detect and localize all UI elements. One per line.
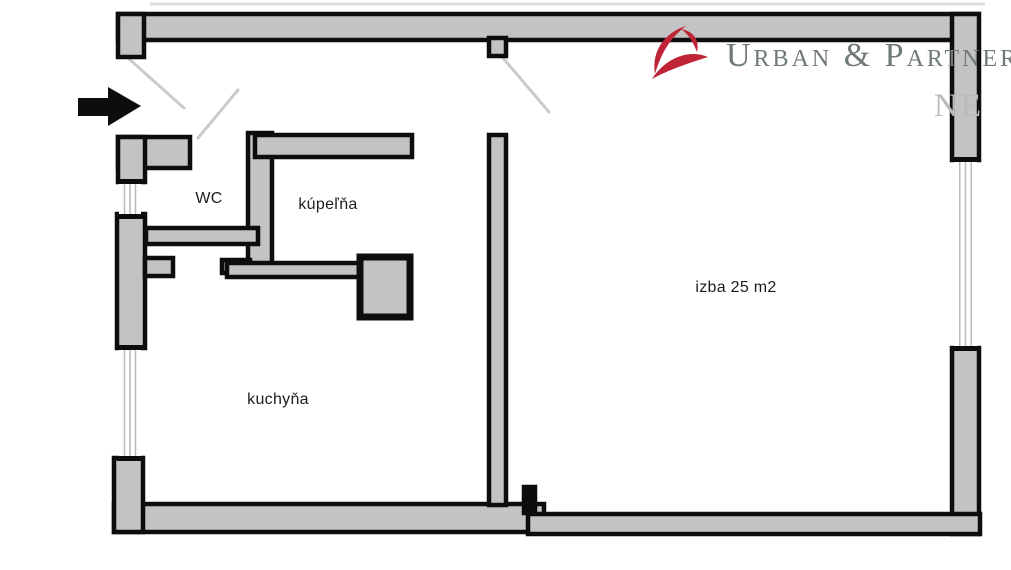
- watermark-text: NE: [934, 88, 984, 125]
- window-left-lower-cap-bottom: [117, 456, 143, 461]
- wall-left-top-wall-v: [118, 137, 145, 182]
- wall-central-wall: [489, 135, 506, 505]
- entry-arrow-icon: [78, 87, 141, 126]
- wall-bottom-wall-izba: [528, 514, 980, 534]
- izba-door-swing: [503, 58, 549, 112]
- room-label-izba: izba 25 m2: [695, 279, 776, 297]
- room-label-wc: WC: [195, 190, 222, 208]
- brand-logo-swoosh-icon: [646, 24, 710, 88]
- window-left-lower-cap-top: [117, 345, 143, 350]
- wall-right-wall-lower: [952, 348, 979, 534]
- wall-bottom-left-corner: [114, 458, 143, 532]
- room-label-kupelna: kúpeľňa: [298, 196, 357, 214]
- wall-top-wall-left-return: [118, 14, 144, 57]
- wall-left-wall-stub: [145, 258, 173, 276]
- room-label-kuchyna: kuchyňa: [247, 391, 309, 409]
- wall-shaft: [360, 257, 410, 317]
- entry-door-swing-right: [198, 90, 238, 138]
- wall-kupelna-south-wall: [227, 263, 364, 277]
- brand-logo: Urban & Partneri: [646, 24, 1011, 88]
- wall-kupelna-north-wall: [255, 135, 412, 157]
- wall-bottom-wall-kitchen: [114, 504, 544, 532]
- window-left-upper-cap-top: [117, 179, 143, 184]
- window-right-cap-top: [952, 157, 979, 162]
- brand-logo-text: Urban & Partneri: [726, 37, 1011, 75]
- wall-central-wall-jamb: [524, 487, 535, 513]
- wall-izba-door-jamb-top: [489, 38, 506, 56]
- wall-left-wall-mid: [117, 214, 145, 348]
- wall-wc-south-wall: [146, 228, 258, 244]
- window-right-cap-bottom: [952, 346, 979, 351]
- entry-door-swing-left: [128, 58, 184, 108]
- window-left-upper-cap-bottom: [117, 214, 143, 219]
